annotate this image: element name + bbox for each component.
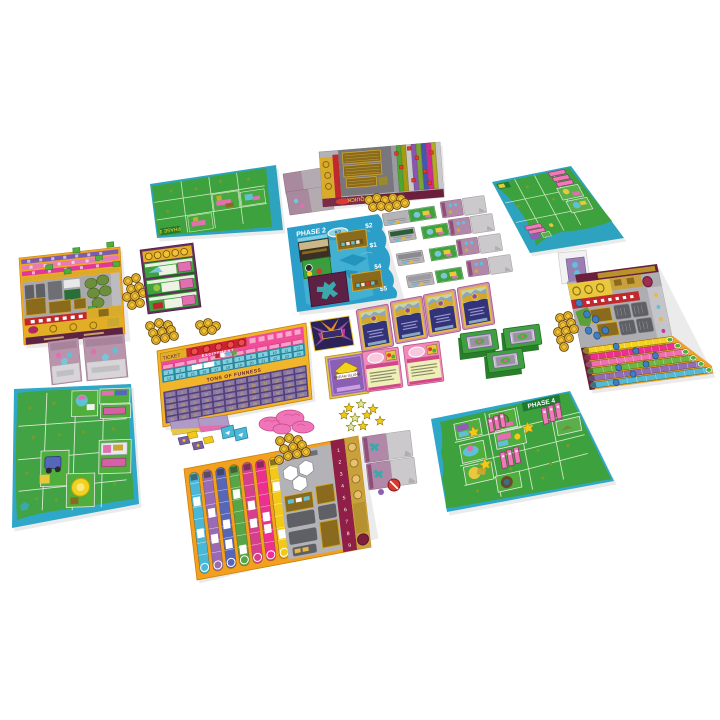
svg-text:30: 30 [228,394,232,399]
svg-text:23: 23 [287,377,291,382]
svg-text:1: 1 [169,393,171,397]
svg-text:14: 14 [181,397,185,402]
svg-text:33: 33 [264,387,268,392]
svg-text:3: 3 [193,388,195,392]
svg-text:56: 56 [253,402,257,407]
svg-text:19: 19 [240,386,244,391]
svg-text:14: 14 [179,374,183,379]
svg-text:9: 9 [264,375,266,379]
svg-text:24: 24 [299,374,303,379]
svg-text:18: 18 [228,388,232,393]
svg-text:2: 2 [179,369,181,373]
svg-text:57: 57 [265,399,269,404]
svg-text:24: 24 [297,352,301,357]
svg-text:50: 50 [182,415,186,420]
svg-text:7: 7 [238,357,240,361]
svg-text:21: 21 [261,359,265,364]
svg-text:51: 51 [194,413,198,418]
svg-text:11: 11 [284,348,288,353]
svg-text:7: 7 [240,380,242,384]
svg-text:42: 42 [229,400,233,405]
svg-text:26: 26 [181,403,185,408]
svg-text:35: 35 [287,383,291,388]
svg-text:13: 13 [169,399,173,404]
svg-text:52: 52 [206,411,210,416]
svg-text:44: 44 [252,396,256,401]
svg-text:53: 53 [217,408,221,413]
svg-text:39: 39 [193,407,197,412]
svg-text:58: 58 [276,397,280,402]
svg-text:28: 28 [205,398,209,403]
svg-text:16: 16 [202,370,206,375]
svg-text:1: 1 [167,371,169,375]
svg-text:12: 12 [296,346,300,351]
svg-text:2: 2 [181,391,183,395]
svg-text:20: 20 [251,383,255,388]
svg-text:29: 29 [216,396,220,401]
svg-text:10: 10 [273,351,277,356]
svg-text:13: 13 [167,376,171,381]
svg-text:36: 36 [299,381,303,386]
svg-text:47: 47 [288,389,292,394]
svg-text:38: 38 [182,409,186,414]
svg-text:31: 31 [240,392,244,397]
svg-text:8: 8 [250,355,252,359]
svg-text:40: 40 [205,404,209,409]
svg-text:59: 59 [288,395,292,400]
svg-text:19: 19 [238,363,242,368]
svg-text:25: 25 [169,405,173,410]
svg-text:5: 5 [215,362,217,366]
svg-text:5: 5 [216,384,218,388]
svg-text:15: 15 [190,372,194,377]
svg-text:34: 34 [275,385,279,390]
svg-text:48: 48 [300,387,304,392]
svg-text:8: 8 [252,377,254,381]
svg-text:20: 20 [249,361,253,366]
svg-text:22: 22 [273,357,277,362]
svg-text:27: 27 [193,401,197,406]
svg-text:18: 18 [226,365,230,370]
svg-text:16: 16 [204,392,208,397]
svg-text:$2: $2 [365,222,373,230]
svg-text:43: 43 [241,398,245,403]
svg-text:37: 37 [170,411,174,416]
svg-text:$1: $1 [369,241,377,249]
svg-text:55: 55 [241,404,245,409]
svg-text:60: 60 [300,393,304,398]
svg-text:9: 9 [262,353,264,357]
svg-text:17: 17 [214,368,218,373]
svg-text:21: 21 [263,381,267,386]
svg-text:23: 23 [285,354,289,359]
svg-text:17: 17 [216,390,220,395]
svg-text:12: 12 [298,368,302,373]
svg-text:6: 6 [226,360,228,364]
svg-text:10: 10 [274,373,278,378]
svg-text:11: 11 [286,371,290,376]
svg-text:54: 54 [229,406,233,411]
svg-text:6: 6 [228,382,230,386]
svg-text:46: 46 [276,391,280,396]
svg-text:15: 15 [192,394,196,399]
svg-text:4: 4 [205,386,207,390]
svg-text:41: 41 [217,402,221,407]
svg-text:22: 22 [275,379,279,384]
svg-text:45: 45 [264,393,268,398]
svg-text:32: 32 [252,389,256,394]
